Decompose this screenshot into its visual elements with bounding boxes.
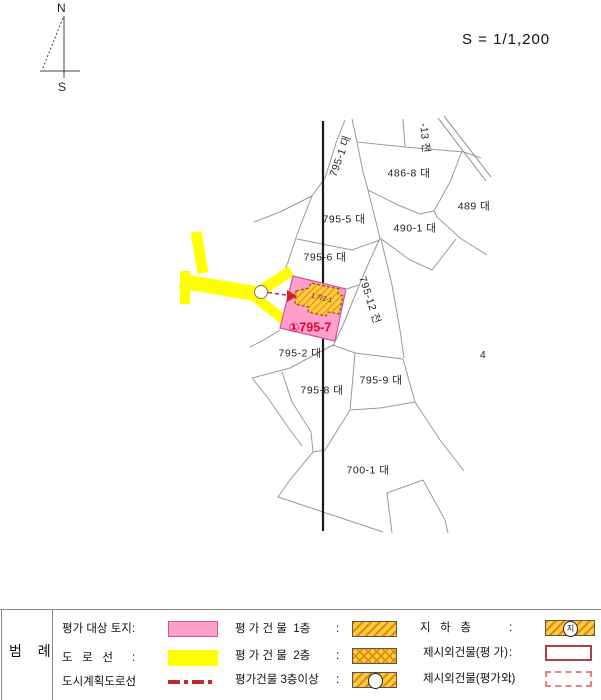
legend-row-subject-land: 평가 대상 토지 :: [62, 621, 232, 638]
legend-row-extra-not-appraised: 제시외건물(평가외) :: [423, 671, 601, 688]
legend-colon: :: [132, 674, 135, 691]
legend-swatch-extra-appraised: [545, 645, 592, 661]
legend-row-building-2f: 평 가 건 물 2층 :: [235, 648, 400, 665]
legend-label: 지 하 층: [420, 620, 471, 637]
leader-line: [268, 293, 286, 296]
dash-segment: [192, 680, 204, 684]
legend-colon: :: [132, 650, 135, 667]
legend-row-building-1f: 평 가 건 물 1층 :: [235, 621, 400, 638]
marker-circle: [255, 286, 268, 299]
ellipse-mark: [368, 673, 383, 689]
legend-colon: :: [336, 648, 339, 665]
legend-title: 범 례: [9, 641, 57, 661]
map-canvas: [0, 0, 601, 700]
legend-label: 도시계획도로선: [62, 674, 136, 691]
legend-swatch-basement: 지: [545, 620, 595, 636]
dot-segment: [184, 680, 188, 684]
legend-label: 제시외건물(평가외): [423, 671, 515, 688]
legend-label: 평가 대상 토지: [62, 621, 132, 638]
north-arrow: [40, 16, 80, 78]
legend-label: 평 가 건 물 1층: [235, 621, 310, 638]
legend-label: 평가건물 3층이상: [235, 672, 319, 689]
legend-row-plan-road: 도시계획도로선 :: [62, 674, 232, 691]
legend-label: 도 로 선: [62, 650, 113, 667]
legend-left-rule: [1, 610, 2, 700]
legend-colon: :: [132, 621, 135, 638]
map-scale-label: S = 1/1,200: [462, 31, 550, 48]
legend-row-road-line: 도 로 선 :: [62, 650, 232, 667]
subject-parcel-label: ①795-7: [289, 320, 332, 335]
legend-swatch-building-3f: [352, 672, 397, 688]
legend-row-extra-appraised: 제시외건물(평 가) :: [423, 645, 601, 662]
compass-south-label: S: [58, 80, 66, 94]
appraisal-map-page: N S S = 1/1,200 795-1 대-13 전486-8 대489 대…: [0, 0, 601, 700]
basement-ellipse-mark: 지: [563, 621, 578, 637]
legend-swatch-road: [168, 650, 218, 666]
legend-swatch-building-2f: [352, 648, 397, 664]
dot-segment: [208, 680, 212, 684]
legend-row-basement: 지 하 층 : 지: [420, 620, 598, 637]
legend-swatch-subject-land: [168, 621, 218, 637]
legend-colon: :: [509, 671, 512, 688]
legend-colon: :: [509, 645, 512, 662]
compass-north-label: N: [57, 1, 66, 15]
legend-swatch-extra-not-appraised: [545, 671, 592, 687]
legend-label: 평 가 건 물 2층: [235, 648, 310, 665]
road-highlight: [180, 232, 291, 320]
legend-colon: :: [336, 672, 339, 689]
legend-swatch-building-1f: [352, 621, 397, 637]
dash-segment: [168, 680, 180, 684]
legend-label: 제시외건물(평 가): [423, 645, 508, 662]
legend-colon: :: [509, 620, 512, 637]
legend-row-building-3f: 평가건물 3층이상 :: [235, 672, 400, 689]
legend-colon: :: [336, 621, 339, 638]
double-line-road: [438, 116, 491, 181]
legend-swatch-plan-road: [168, 680, 212, 684]
legend-top-rule: [0, 609, 601, 610]
